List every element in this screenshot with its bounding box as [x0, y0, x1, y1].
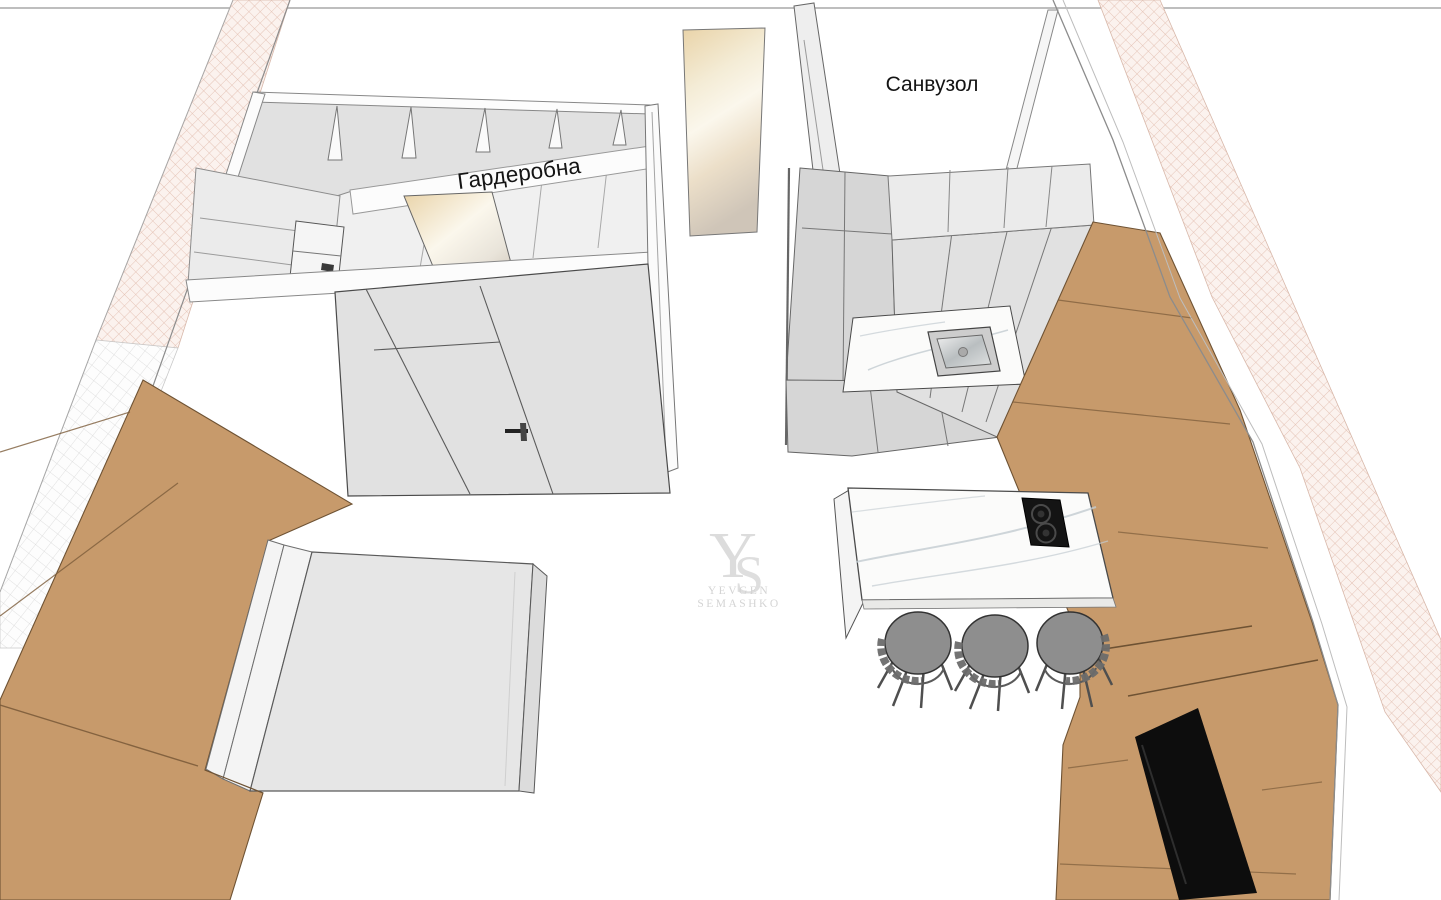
cooktop-burner-center [1038, 511, 1045, 518]
stool-seat [1037, 612, 1103, 674]
cooktop-burner-center [1043, 530, 1050, 537]
wardrobe-front-wall [335, 264, 670, 496]
wall-mirror [683, 28, 765, 236]
sink-drain [959, 348, 968, 357]
door-handle-plate [520, 423, 527, 441]
watermark-name-line1: YEVGEN [708, 585, 770, 597]
stool-seat [962, 615, 1028, 677]
room-label-bathroom: Санвузол [886, 73, 979, 96]
kitchen-sink [928, 327, 1000, 376]
watermark-name-line2: SEMASHKO [697, 598, 780, 610]
stool-seat [885, 612, 951, 674]
island-front-edge [862, 598, 1116, 609]
render-viewport: Y S YEVGEN SEMASHKO Гардеробна Санвузол [0, 0, 1441, 900]
render-canvas: Y S YEVGEN SEMASHKO Гардеробна Санвузол [0, 0, 1441, 900]
